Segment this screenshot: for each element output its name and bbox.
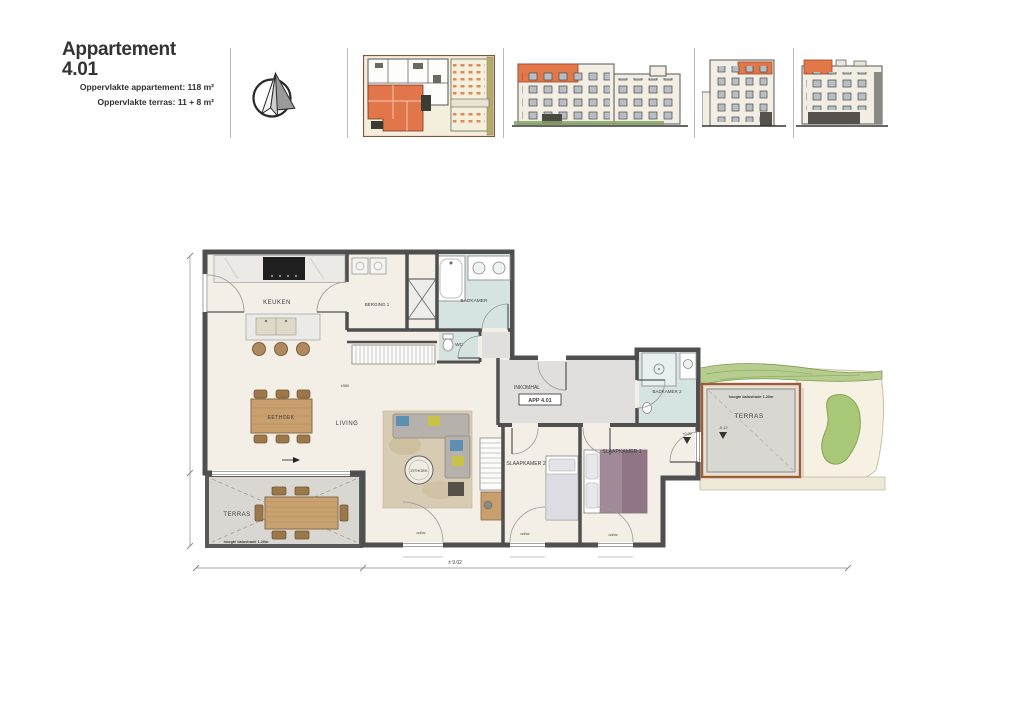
appliance [352, 258, 368, 274]
divider [793, 48, 794, 138]
divider [694, 48, 695, 138]
highlighted-floor [804, 60, 832, 74]
level-marker: -0.12 [718, 425, 728, 430]
dim-label: ±560 [341, 384, 349, 388]
appliance [370, 258, 386, 274]
bar-stool [253, 343, 266, 356]
room-label-terras-right: TERRAS [734, 413, 764, 420]
room-label-berging: BERGING 1 [365, 302, 390, 307]
level-marker: +0.00 [682, 432, 692, 436]
bar-stool [275, 343, 288, 356]
area-apartment: Oppervlakte appartement: 118 m² [40, 80, 214, 95]
unit-label: APP 4.01 [528, 398, 551, 404]
room-label-keuken: KEUKEN [263, 300, 291, 306]
room-label-zithoek: ZITHOEK [410, 468, 428, 473]
overall-dimension: ± 9.02 [448, 560, 462, 566]
room-label-inkomhal: INKOMHAL [514, 385, 540, 391]
window-note: od/ov [520, 532, 529, 536]
room-label-living: LIVING [336, 421, 359, 427]
balustrade-note-left: hoogte balustrade 1.20m [224, 540, 269, 544]
room-label-eethoek: EETHOEK [268, 415, 295, 421]
thumbnail-elevation-street [512, 58, 688, 132]
wc-fixtures [443, 334, 453, 351]
area-summary: Oppervlakte appartement: 118 m² Oppervla… [40, 80, 214, 110]
window-note: od/ov [416, 531, 425, 535]
bed-single [546, 456, 578, 520]
sitting-corner: ZITHOEK [383, 411, 472, 508]
dining-set: EETHOEK [251, 390, 312, 443]
area-terrace: Oppervlakte terras: 11 + 8 m² [40, 95, 214, 110]
terrace-right: hoogte balustrade 1.20m TERRAS -0.12 [702, 384, 800, 477]
plan-sheet: Appartement 4.01 Oppervlakte appartement… [0, 0, 1024, 726]
room-label-wc: WC [455, 342, 464, 348]
window-note: od/ov [608, 533, 617, 537]
bed-double [584, 450, 647, 513]
compass-north-icon [244, 70, 300, 130]
cooktop [263, 257, 305, 280]
divider [503, 48, 504, 138]
bar-stool [297, 343, 310, 356]
thumbnail-elevation-side-left [702, 50, 786, 135]
divider [347, 48, 348, 138]
hall-floor [482, 332, 510, 358]
floor-plan: hoogte balustrade 1.20m TERRAS -0.12 TER… [170, 225, 910, 605]
thumbnail-elevation-side-right [796, 52, 888, 136]
terrace-left: TERRAS hoogte balustrade 1.20m [207, 475, 361, 546]
balustrade-note-right: hoogte balustrade 1.20m [729, 395, 774, 399]
room-label-badkamer: BADKAMER [461, 298, 488, 304]
room-label-badkamer2: BADKAMER 2 [652, 389, 682, 394]
room-label-slaapkamer2: SLAAPKAMER 2 [506, 461, 546, 467]
inkomhal-floor [500, 360, 635, 423]
technical-shaft [408, 279, 436, 319]
room-label-slaapkamer1: SLAAPKAMER 1 [602, 449, 642, 455]
room-label-terras-left: TERRAS [223, 512, 250, 518]
thumbnail-site-plan [363, 55, 495, 137]
divider [230, 48, 231, 138]
page-title: Appartement 4.01 [62, 40, 214, 80]
